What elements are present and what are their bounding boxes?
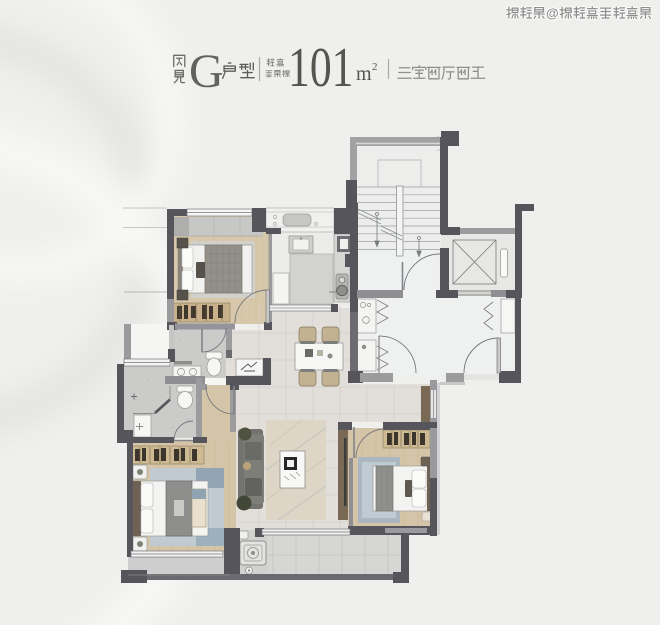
svg-text:101: 101	[288, 36, 354, 98]
svg-text:2: 2	[372, 61, 378, 73]
svg-text:@: @	[546, 6, 559, 21]
svg-text:m: m	[356, 63, 372, 85]
svg-text:G: G	[189, 45, 224, 98]
